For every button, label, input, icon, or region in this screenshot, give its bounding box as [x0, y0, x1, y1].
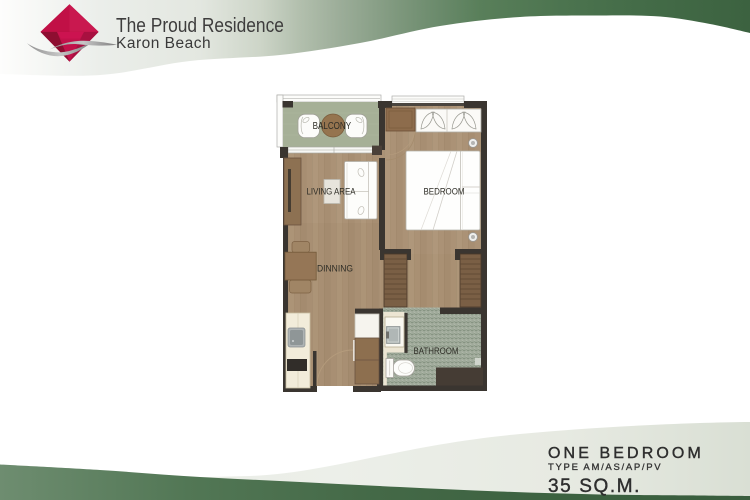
svg-text:BEDROOM: BEDROOM: [424, 187, 465, 198]
svg-text:DINNING: DINNING: [317, 264, 353, 275]
svg-text:BATHROOM: BATHROOM: [414, 346, 459, 357]
svg-text:BALCONY: BALCONY: [313, 120, 352, 132]
svg-text:LIVING AREA: LIVING AREA: [307, 186, 357, 197]
